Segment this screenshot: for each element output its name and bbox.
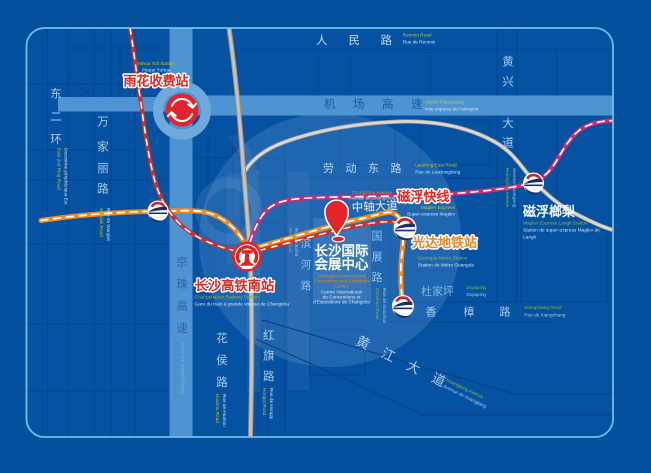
svg-text:Airport Expressway: Airport Expressway — [425, 100, 466, 105]
svg-text:Station de Métro Guangda: Station de Métro Guangda — [418, 263, 475, 269]
svg-text:兴: 兴 — [502, 76, 514, 89]
svg-text:Laodong East Road: Laodong East Road — [415, 163, 457, 168]
svg-text:东: 东 — [368, 162, 379, 175]
svg-text:Xiangzhang Road: Xiangzhang Road — [524, 305, 562, 310]
svg-text:侯: 侯 — [216, 353, 228, 367]
svg-text:Avenue Huangxing: Avenue Huangxing — [512, 168, 517, 208]
svg-text:磁浮榔梨: 磁浮榔梨 — [523, 204, 576, 219]
svg-text:光达地铁站: 光达地铁站 — [411, 235, 477, 250]
svg-text:d'Expositions de Changsha: d'Expositions de Changsha — [313, 300, 370, 305]
svg-text:Zhongzhou Avenue: Zhongzhou Avenue — [352, 190, 393, 195]
svg-text:人: 人 — [316, 34, 328, 47]
svg-text:速: 速 — [411, 98, 423, 111]
svg-text:Rue de Wanjiali: Rue de Wanjiali — [106, 208, 111, 241]
svg-text:东: 东 — [50, 88, 62, 101]
svg-text:路: 路 — [372, 271, 383, 284]
svg-text:Beijing-Zhuhai Expressway: Beijing-Zhuhai Expressway — [174, 342, 179, 399]
svg-text:Binhe Road: Binhe Road — [288, 228, 293, 253]
svg-text:Deuxième périphérique Est: Deuxième périphérique Est — [64, 148, 69, 205]
svg-text:劳: 劳 — [323, 162, 334, 175]
svg-text:Rue de Xiangzhang: Rue de Xiangzhang — [524, 313, 566, 318]
svg-text:Renmin Road: Renmin Road — [403, 33, 432, 38]
svg-text:Rue de Hongqi: Rue de Hongqi — [269, 388, 274, 419]
svg-text:旗: 旗 — [263, 349, 275, 363]
svg-text:场: 场 — [353, 97, 365, 111]
svg-text:动: 动 — [346, 162, 357, 175]
svg-text:Rue de Huahou: Rue de Huahou — [222, 394, 227, 427]
svg-text:Autoroute Beijing-Zhuhai: Autoroute Beijing-Zhuhai — [181, 342, 186, 394]
svg-text:路: 路 — [263, 369, 275, 383]
svg-text:Maglev Express: Maglev Express — [421, 205, 456, 211]
svg-text:Dujiaping: Dujiaping — [467, 285, 487, 290]
svg-text:路: 路 — [216, 375, 228, 389]
svg-text:滨: 滨 — [301, 237, 312, 250]
svg-text:磁浮快线: 磁浮快线 — [398, 189, 450, 204]
svg-text:Rue de Binhe: Rue de Binhe — [294, 228, 299, 257]
svg-text:Rue de Laodongdong: Rue de Laodongdong — [415, 170, 460, 175]
svg-text:Dujiaping: Dujiaping — [467, 292, 487, 297]
svg-text:Yuhua Toll Station: Yuhua Toll Station — [137, 61, 176, 67]
svg-text:环: 环 — [50, 134, 62, 146]
svg-text:Hongqi Road: Hongqi Road — [262, 388, 267, 416]
svg-text:河: 河 — [301, 259, 312, 271]
svg-text:Wanjiali Road: Wanjiali Road — [99, 208, 104, 237]
svg-text:国: 国 — [372, 230, 383, 243]
svg-text:道: 道 — [502, 136, 514, 150]
svg-text:丽: 丽 — [97, 163, 109, 175]
svg-text:Super-express Maglev: Super-express Maglev — [407, 212, 456, 218]
svg-text:Voie express de l'aéroport: Voie express de l'aéroport — [425, 107, 480, 112]
svg-text:Maglev Express Langli Station: Maglev Express Langli Station — [523, 221, 588, 227]
svg-text:Guangda Metro Station: Guangda Metro Station — [418, 256, 468, 262]
svg-text:花: 花 — [216, 332, 228, 345]
svg-text:路: 路 — [381, 33, 393, 47]
svg-text:黄: 黄 — [502, 55, 514, 69]
svg-text:East 2nd Ring Road: East 2nd Ring Road — [57, 148, 62, 190]
svg-text:长沙高铁南站: 长沙高铁南站 — [195, 277, 275, 293]
svg-text:会展中心: 会展中心 — [315, 256, 369, 272]
svg-text:Rue de Guozhan: Rue de Guozhan — [382, 288, 387, 324]
svg-text:路: 路 — [500, 306, 511, 319]
svg-text:Gare du train à grande vitesse: Gare du train à grande vitesse de Changs… — [195, 302, 290, 308]
svg-text:路: 路 — [301, 279, 312, 292]
svg-text:珠: 珠 — [176, 277, 188, 291]
svg-text:机: 机 — [324, 97, 336, 111]
svg-text:Langli: Langli — [523, 235, 536, 241]
svg-text:二: 二 — [50, 112, 62, 124]
svg-text:Center: Center — [334, 284, 349, 289]
svg-text:万: 万 — [97, 117, 109, 129]
svg-text:路: 路 — [391, 162, 402, 175]
svg-text:速: 速 — [176, 322, 188, 335]
svg-text:家: 家 — [97, 140, 109, 154]
svg-text:大: 大 — [502, 116, 514, 130]
svg-text:Rue de Renmin: Rue de Renmin — [403, 40, 436, 45]
svg-text:民: 民 — [349, 35, 361, 47]
svg-text:路: 路 — [97, 182, 109, 196]
svg-text:Huangxing Avenue: Huangxing Avenue — [505, 168, 510, 208]
svg-text:雨花收费站: 雨花收费站 — [123, 74, 188, 89]
svg-text:京: 京 — [176, 255, 188, 269]
svg-text:Guozhan Road: Guozhan Road — [375, 288, 380, 320]
svg-text:Changshanan Railway Station: Changshanan Railway Station — [195, 295, 260, 301]
svg-text:高: 高 — [176, 299, 188, 313]
svg-text:高: 高 — [382, 97, 394, 111]
svg-text:香: 香 — [426, 306, 437, 319]
svg-text:Station de super-express Magle: Station de super-express Maglev de — [523, 228, 600, 234]
svg-text:杜家坪: 杜家坪 — [421, 284, 454, 298]
svg-text:Huahou Road: Huahou Road — [215, 394, 220, 423]
svg-text:展: 展 — [372, 251, 383, 264]
svg-text:红: 红 — [263, 329, 275, 342]
svg-text:樟: 樟 — [464, 305, 475, 319]
